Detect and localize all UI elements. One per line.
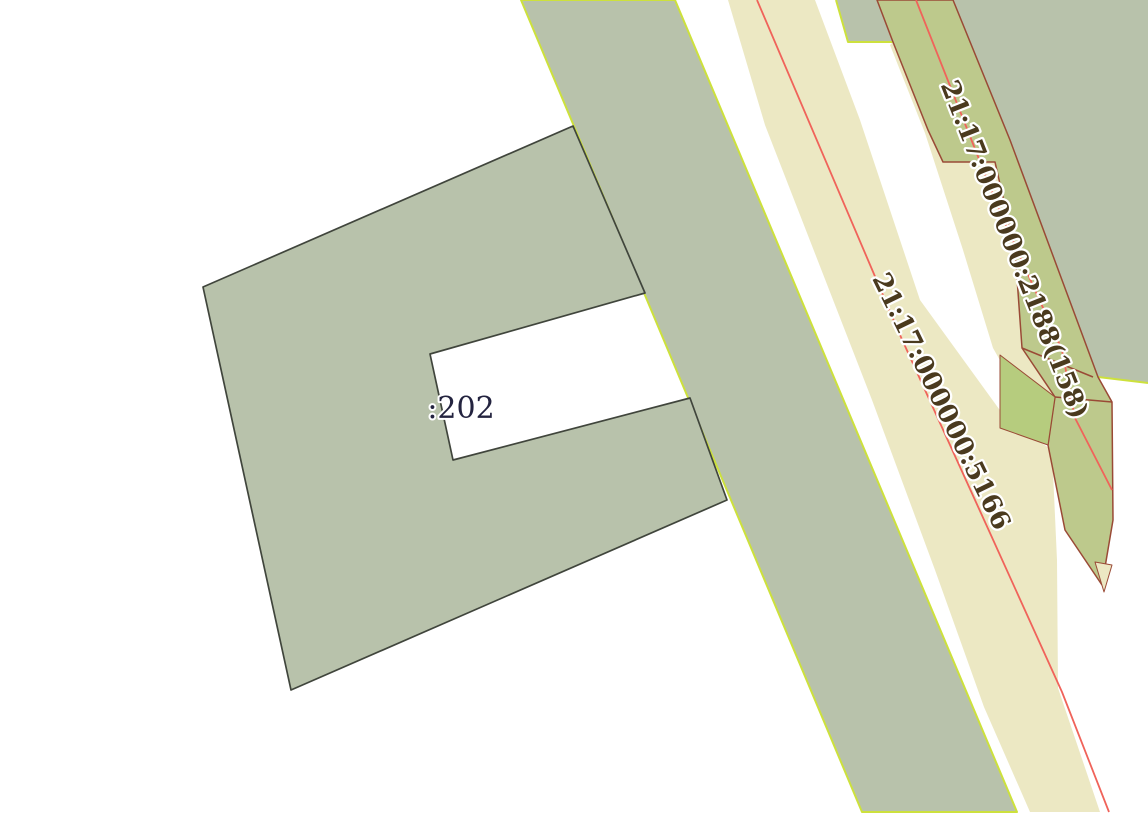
map-svg[interactable]: :20221:17:000000:516621:17:000000:2188(1… xyxy=(0,0,1148,820)
parcel-label-202: :202 xyxy=(427,391,494,426)
cadastral-map-viewport[interactable]: :20221:17:000000:516621:17:000000:2188(1… xyxy=(0,0,1148,820)
